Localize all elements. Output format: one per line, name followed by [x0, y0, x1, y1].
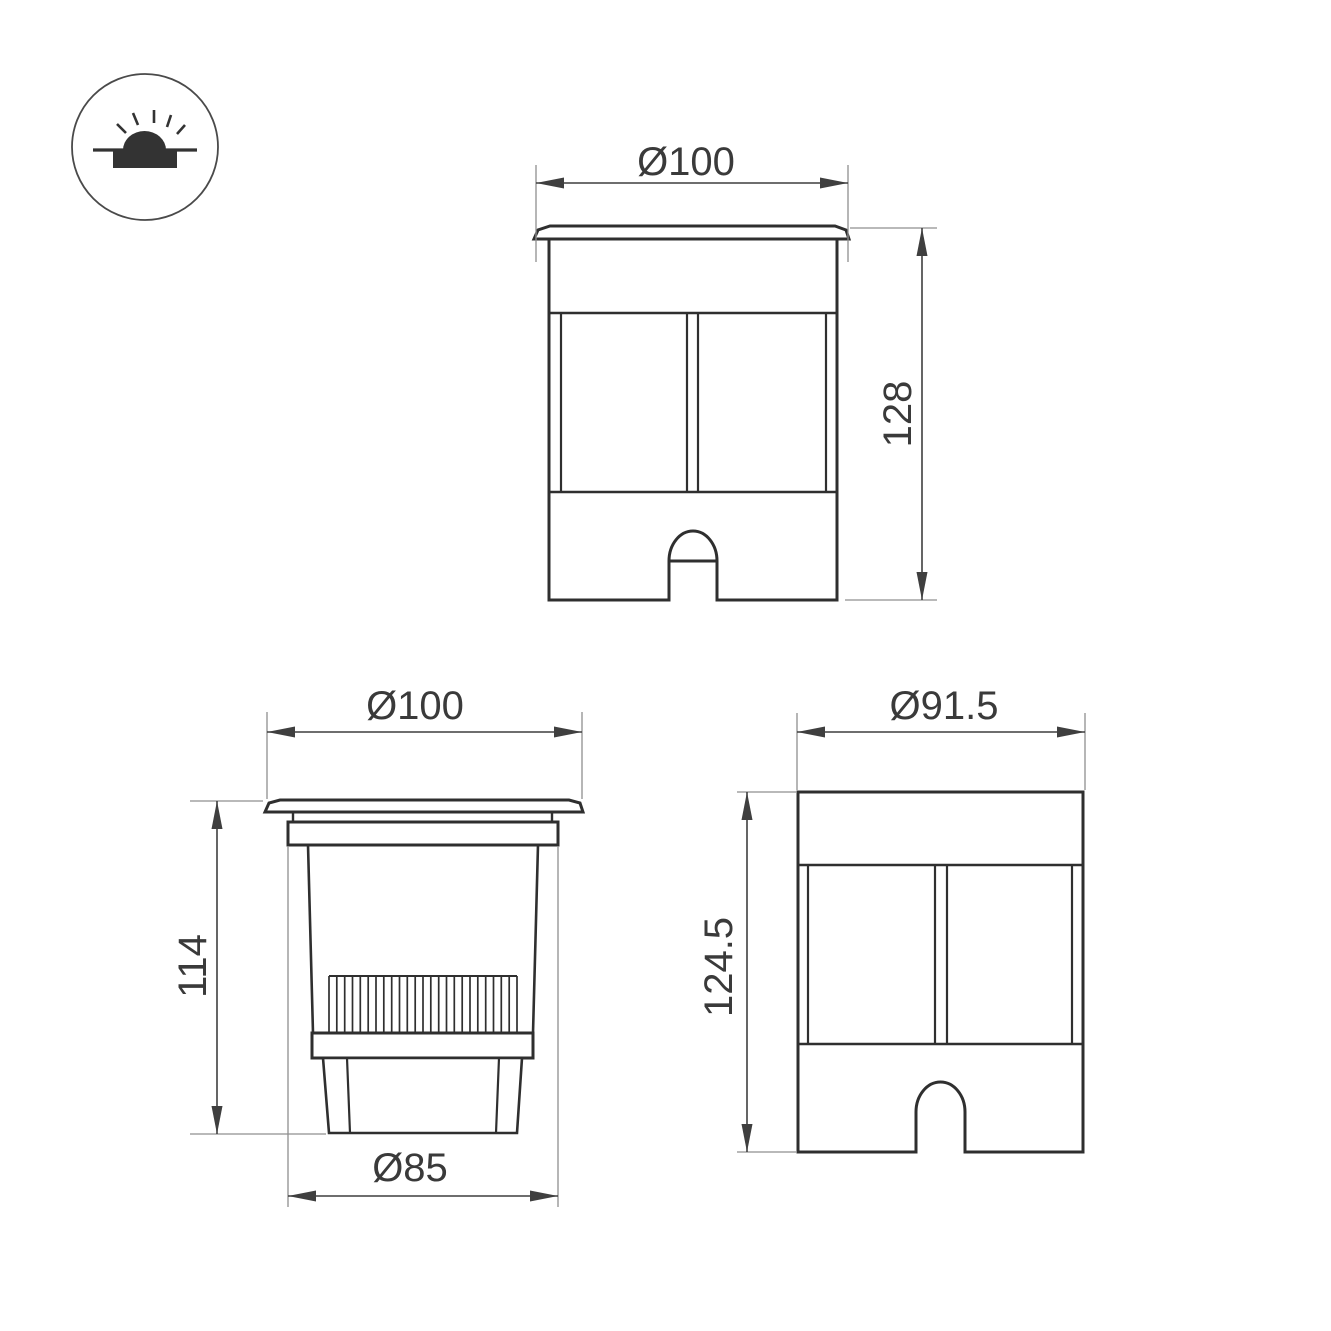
side-body — [798, 792, 1083, 1152]
section-width-arrow-right — [554, 727, 582, 738]
section-height-dimension-label: 114 — [171, 934, 215, 998]
section-ring-band — [288, 822, 558, 845]
section-bottom-width-arrow-left — [288, 1191, 316, 1202]
section-bottom-width-arrow-right — [530, 1191, 558, 1202]
side-view: Ø91.5 124.5 — [697, 684, 1085, 1152]
section-width-arrow-left — [267, 727, 295, 738]
section-height-arrow-bottom — [212, 1106, 223, 1134]
side-width-dimension: Ø91.5 — [797, 684, 1085, 790]
section-height-dimension: 114 — [171, 801, 326, 1134]
side-width-arrow-right — [1057, 727, 1085, 738]
recessed-ground-light-icon — [72, 74, 218, 220]
section-lamp-band — [312, 1033, 533, 1058]
icon-recessed-body — [113, 152, 177, 169]
icon-light-dome — [123, 131, 166, 150]
side-height-arrow-bottom — [742, 1124, 753, 1152]
section-width-dimension: Ø100 — [267, 684, 582, 799]
front-width-arrow-right — [820, 178, 848, 189]
side-view-outline — [798, 792, 1083, 1152]
front-view: Ø100 128 — [534, 140, 937, 600]
front-height-dimension: 128 — [845, 228, 937, 600]
side-height-extension-lines — [737, 792, 796, 1152]
dimension-drawing: Ø100 128 Ø100 — [0, 0, 1331, 1331]
section-view-outline — [265, 800, 583, 1133]
side-width-arrow-left — [797, 727, 825, 738]
side-width-dimension-label: Ø91.5 — [890, 684, 999, 728]
front-body — [549, 239, 837, 600]
side-height-arrow-top — [742, 792, 753, 820]
front-flange — [534, 226, 849, 239]
front-height-dimension-label: 128 — [876, 381, 920, 448]
section-flange — [265, 800, 583, 812]
front-width-dimension-label: Ø100 — [637, 140, 735, 184]
side-height-dimension: 124.5 — [697, 792, 796, 1152]
side-height-dimension-label: 124.5 — [697, 917, 741, 1017]
section-view: Ø100 114 Ø85 — [171, 684, 583, 1207]
technical-drawing-canvas: Ø100 128 Ø100 — [0, 0, 1331, 1331]
section-bottom-foot — [323, 1058, 522, 1133]
section-height-arrow-top — [212, 801, 223, 829]
section-heatsink-fins — [329, 976, 517, 1033]
icon-light-rays — [117, 110, 185, 134]
front-view-outline — [534, 226, 849, 600]
front-height-arrow-bottom — [917, 572, 928, 600]
section-bottom-width-dimension-label: Ø85 — [372, 1146, 448, 1190]
section-width-dimension-label: Ø100 — [366, 684, 464, 728]
front-width-arrow-left — [536, 178, 564, 189]
front-height-arrow-top — [917, 228, 928, 256]
